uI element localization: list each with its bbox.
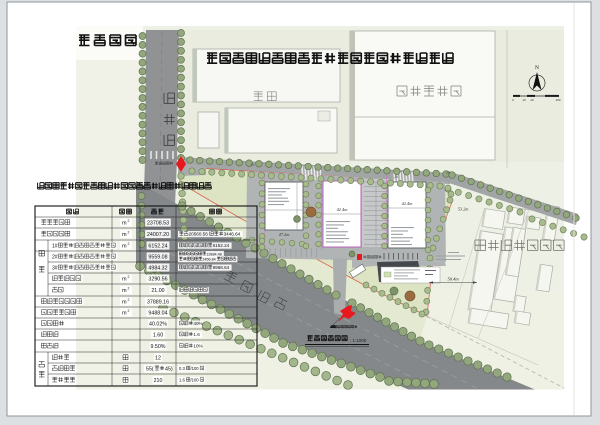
svg-text:3456.84: 3456.84 [202, 258, 215, 262]
svg-text:m: m [122, 311, 127, 317]
svg-text:m: m [122, 288, 127, 294]
svg-text:100: 100 [555, 98, 560, 102]
svg-text:1.6: 1.6 [193, 332, 200, 337]
svg-text:2: 2 [128, 219, 130, 223]
svg-text:12884.48: 12884.48 [206, 252, 221, 256]
svg-text:40.02%: 40.02% [149, 322, 167, 328]
svg-text:42.4m: 42.4m [337, 207, 348, 212]
svg-text:3446.64: 3446.64 [224, 232, 241, 237]
svg-text:23708.53: 23708.53 [147, 221, 169, 227]
svg-text:50.4m: 50.4m [447, 277, 459, 282]
svg-text:2#: 2# [52, 255, 58, 261]
svg-text:20: 20 [530, 98, 534, 102]
svg-text:1#: 1# [52, 244, 58, 250]
svg-text:m: m [122, 221, 127, 227]
svg-text:m: m [122, 232, 127, 238]
svg-text:55(: 55( [146, 367, 154, 373]
svg-text:2: 2 [128, 287, 130, 291]
svg-text:2: 2 [128, 309, 130, 313]
svg-text:10%: 10% [193, 344, 202, 349]
svg-text:9559.08: 9559.08 [148, 255, 167, 261]
svg-text:2: 2 [128, 231, 130, 235]
svg-text:m: m [122, 244, 127, 250]
svg-text:6152.24: 6152.24 [213, 243, 230, 248]
svg-text:10: 10 [522, 98, 526, 102]
svg-text:m: m [122, 300, 127, 306]
svg-text:47.2m: 47.2m [279, 232, 290, 237]
svg-text:9.50%: 9.50% [150, 344, 165, 350]
svg-text:: 1:1000: : 1:1000 [350, 338, 367, 343]
svg-text:J9: J9 [250, 163, 254, 167]
svg-text:2: 2 [128, 298, 130, 302]
svg-text:6152.24: 6152.24 [148, 244, 167, 250]
svg-text:m: m [122, 277, 127, 283]
svg-text:1.6: 1.6 [179, 378, 185, 383]
svg-text:N: N [535, 65, 539, 71]
svg-text:/100: /100 [190, 378, 199, 383]
svg-text:0.3: 0.3 [179, 366, 185, 371]
svg-text:1.60: 1.60 [153, 333, 163, 339]
svg-text:20560.56: 20560.56 [189, 232, 209, 237]
svg-text:2: 2 [128, 242, 130, 246]
svg-text:53.2m: 53.2m [458, 207, 468, 212]
svg-text:12: 12 [155, 356, 161, 362]
svg-text:9968.64: 9968.64 [213, 265, 230, 270]
svg-text:21.00: 21.00 [151, 288, 164, 294]
svg-text:37889.16: 37889.16 [147, 300, 169, 306]
svg-text:4984.32: 4984.32 [148, 266, 167, 272]
svg-text:3#: 3# [52, 266, 58, 272]
svg-text:40%: 40% [193, 321, 202, 326]
svg-text:45): 45) [165, 367, 173, 373]
svg-text:9488.04: 9488.04 [148, 311, 167, 317]
svg-text:2: 2 [128, 275, 130, 279]
svg-text:24007.20: 24007.20 [147, 232, 169, 238]
svg-text:J8: J8 [394, 175, 398, 179]
svg-text:3290.56: 3290.56 [148, 277, 167, 283]
svg-text:42.4m: 42.4m [402, 201, 413, 206]
svg-text:210: 210 [154, 378, 163, 384]
svg-text:/100: /100 [190, 366, 199, 371]
